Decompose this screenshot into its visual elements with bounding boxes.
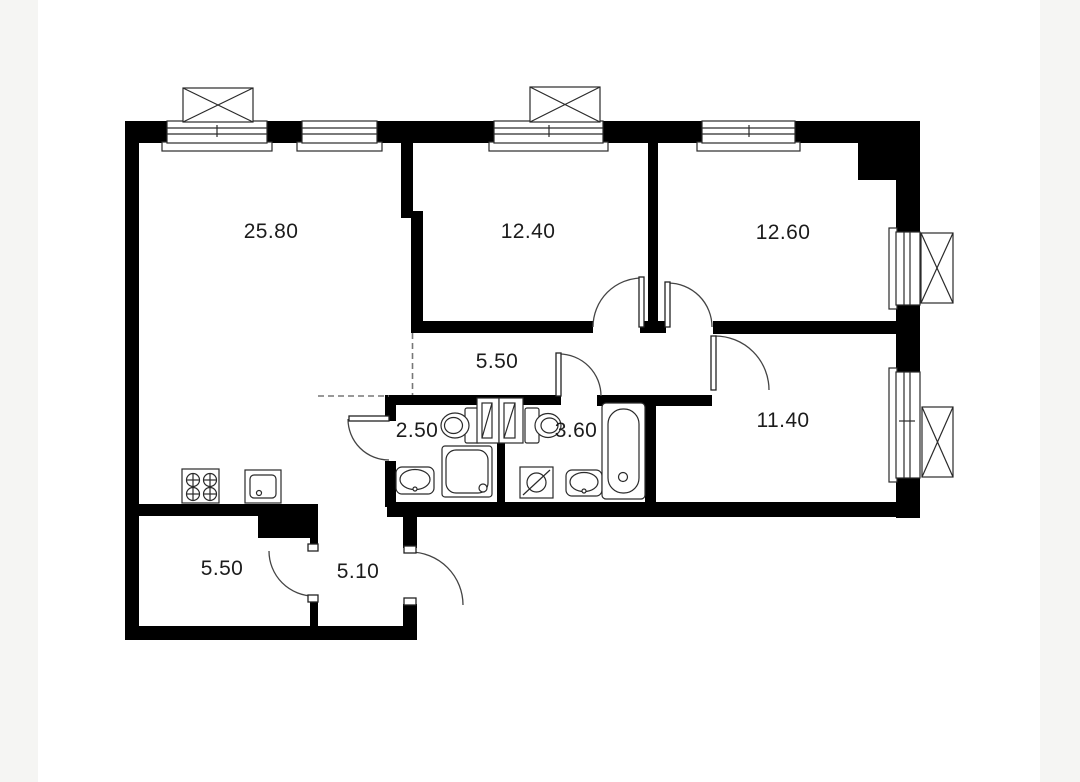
window-icon: [889, 228, 920, 309]
walls: [125, 121, 920, 640]
washbasin-icon: [396, 467, 434, 494]
window-icon: [162, 121, 272, 151]
window-icon: [297, 121, 382, 151]
wall: [648, 143, 658, 323]
wall: [125, 626, 417, 640]
door-swing-icon: [348, 416, 389, 460]
vent-shaft-icon: [499, 398, 523, 443]
ac-unit-icon: [530, 87, 600, 122]
ac-unit-icon: [921, 233, 953, 303]
room-label-living-kitchen: 25.80: [244, 220, 299, 244]
floor-plan-drawing: [0, 0, 1080, 782]
door-swing-icon: [556, 353, 601, 396]
vent-shaft-icon: [477, 398, 499, 443]
toilet-icon: [441, 408, 480, 443]
stove-icon: [182, 469, 219, 503]
wall-block: [258, 516, 318, 538]
wall: [896, 143, 920, 232]
wall: [413, 321, 593, 333]
room-label-hallway: 5.10: [337, 560, 379, 584]
wall: [645, 395, 656, 517]
ac-unit-icon: [922, 407, 953, 477]
room-label-wc: 2.50: [396, 419, 438, 443]
room-label-bedroom-2: 12.60: [756, 221, 811, 245]
shower-icon: [442, 446, 492, 497]
room-label-bedroom-1: 12.40: [501, 220, 556, 244]
door-swing-icon: [711, 336, 769, 390]
wall: [401, 211, 423, 218]
wall: [896, 305, 920, 372]
window-icon: [489, 121, 608, 151]
wall: [377, 121, 494, 143]
wall: [139, 504, 318, 516]
door-swing-icon: [269, 544, 318, 602]
wall: [125, 121, 139, 640]
wall-pilaster: [858, 143, 896, 180]
wall: [401, 143, 413, 214]
room-label-corridor: 5.50: [476, 350, 518, 374]
room-label-storage-room: 5.50: [201, 557, 243, 581]
washing-machine-icon: [520, 467, 553, 498]
fixtures: [182, 398, 645, 503]
wall: [403, 604, 417, 640]
wall: [713, 321, 905, 334]
wall: [267, 121, 302, 143]
washbasin-icon: [566, 470, 602, 496]
kitchen-sink-icon: [245, 470, 281, 503]
window-icon: [697, 121, 800, 151]
floor-plan-stage: 25.80 12.40 12.60 5.50 2.50 3.60 11.40 5…: [0, 0, 1080, 782]
wall: [403, 512, 417, 548]
window-icon: [889, 368, 920, 482]
door-swing-icon: [593, 277, 644, 327]
wall: [795, 121, 920, 143]
door-swing-icon: [665, 282, 712, 327]
bathtub-icon: [602, 403, 645, 499]
wall: [385, 461, 396, 507]
wall: [497, 443, 505, 503]
wall: [603, 121, 702, 143]
wall: [411, 217, 423, 333]
room-label-bedroom-3: 11.40: [757, 409, 810, 433]
wall: [385, 395, 561, 405]
open-boundary-dashed-lines: [318, 333, 413, 396]
door-swing-icon: [404, 546, 463, 605]
ac-unit-icon: [183, 88, 253, 122]
room-label-bathroom: 3.60: [555, 419, 597, 443]
